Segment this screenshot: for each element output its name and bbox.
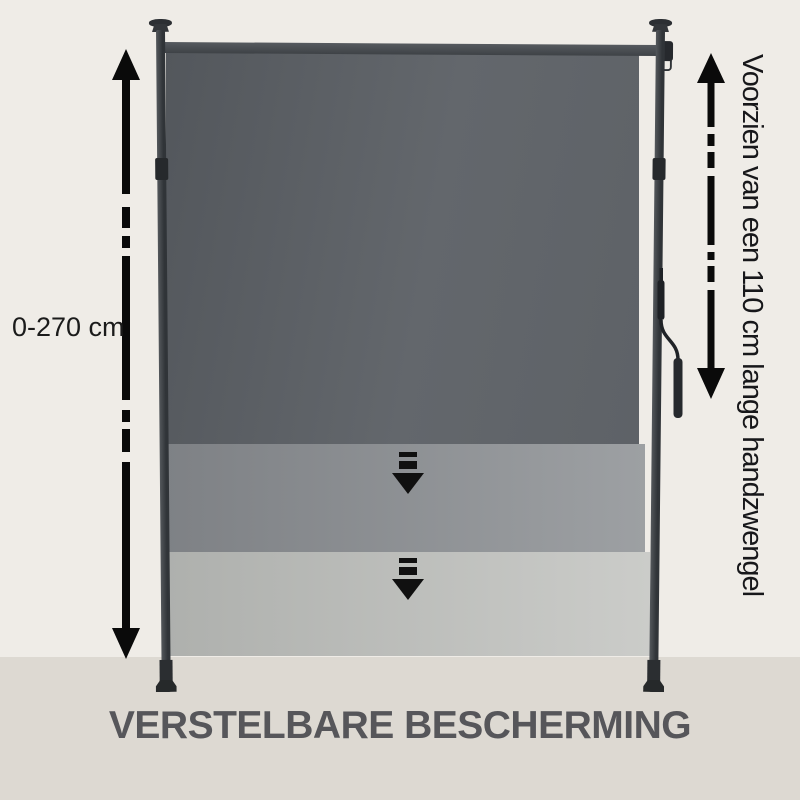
height-range-arrow-icon [109, 48, 143, 660]
blind-fabric-retracted [166, 49, 639, 444]
right-pole-joint-sleeve [652, 158, 665, 180]
extend-down-arrow-icon [392, 558, 424, 600]
crank-note-label: Voorzien van een 110 cm lange handzwenge… [735, 54, 768, 596]
roller-tube-bar [162, 42, 664, 56]
left-pole-foot [159, 660, 172, 682]
hand-crank-icon [650, 268, 690, 428]
roller-tube [162, 38, 676, 71]
left-pole-joint-sleeve [155, 158, 168, 180]
crank-length-arrow-icon [695, 52, 727, 400]
height-range-label: 0-270 cm [12, 312, 125, 343]
right-pole-foot [647, 660, 660, 682]
extend-down-arrow-icon [392, 452, 424, 494]
product-caption: VERSTELBARE BESCHERMING [0, 704, 800, 748]
